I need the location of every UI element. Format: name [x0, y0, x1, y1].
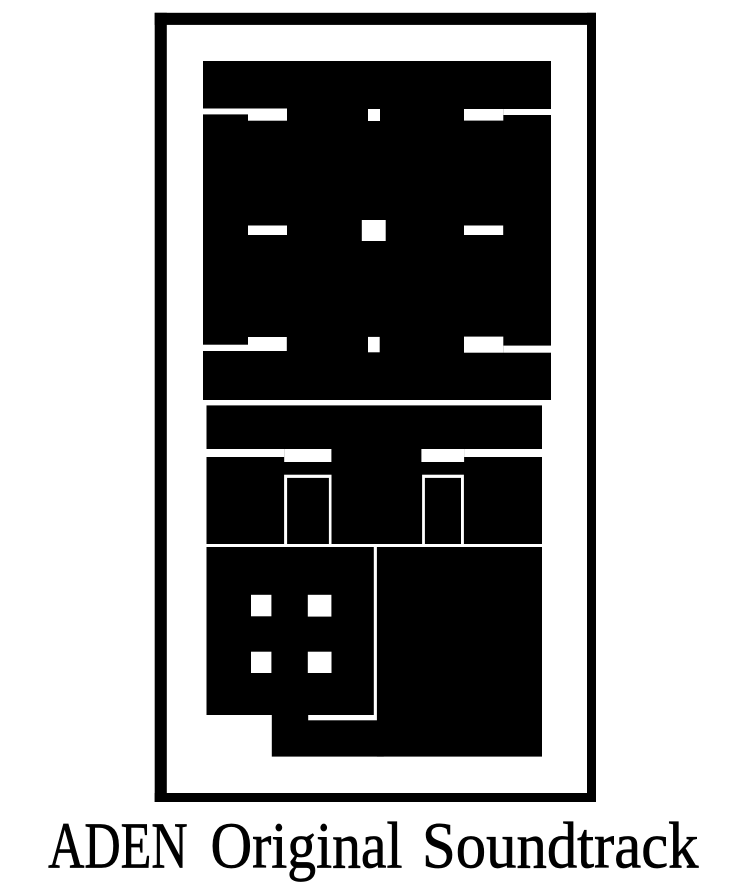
svg-text:Original: Original	[211, 810, 403, 883]
svg-text:Soundtrack: Soundtrack	[422, 810, 699, 883]
svg-text:ADEN: ADEN	[48, 810, 188, 883]
